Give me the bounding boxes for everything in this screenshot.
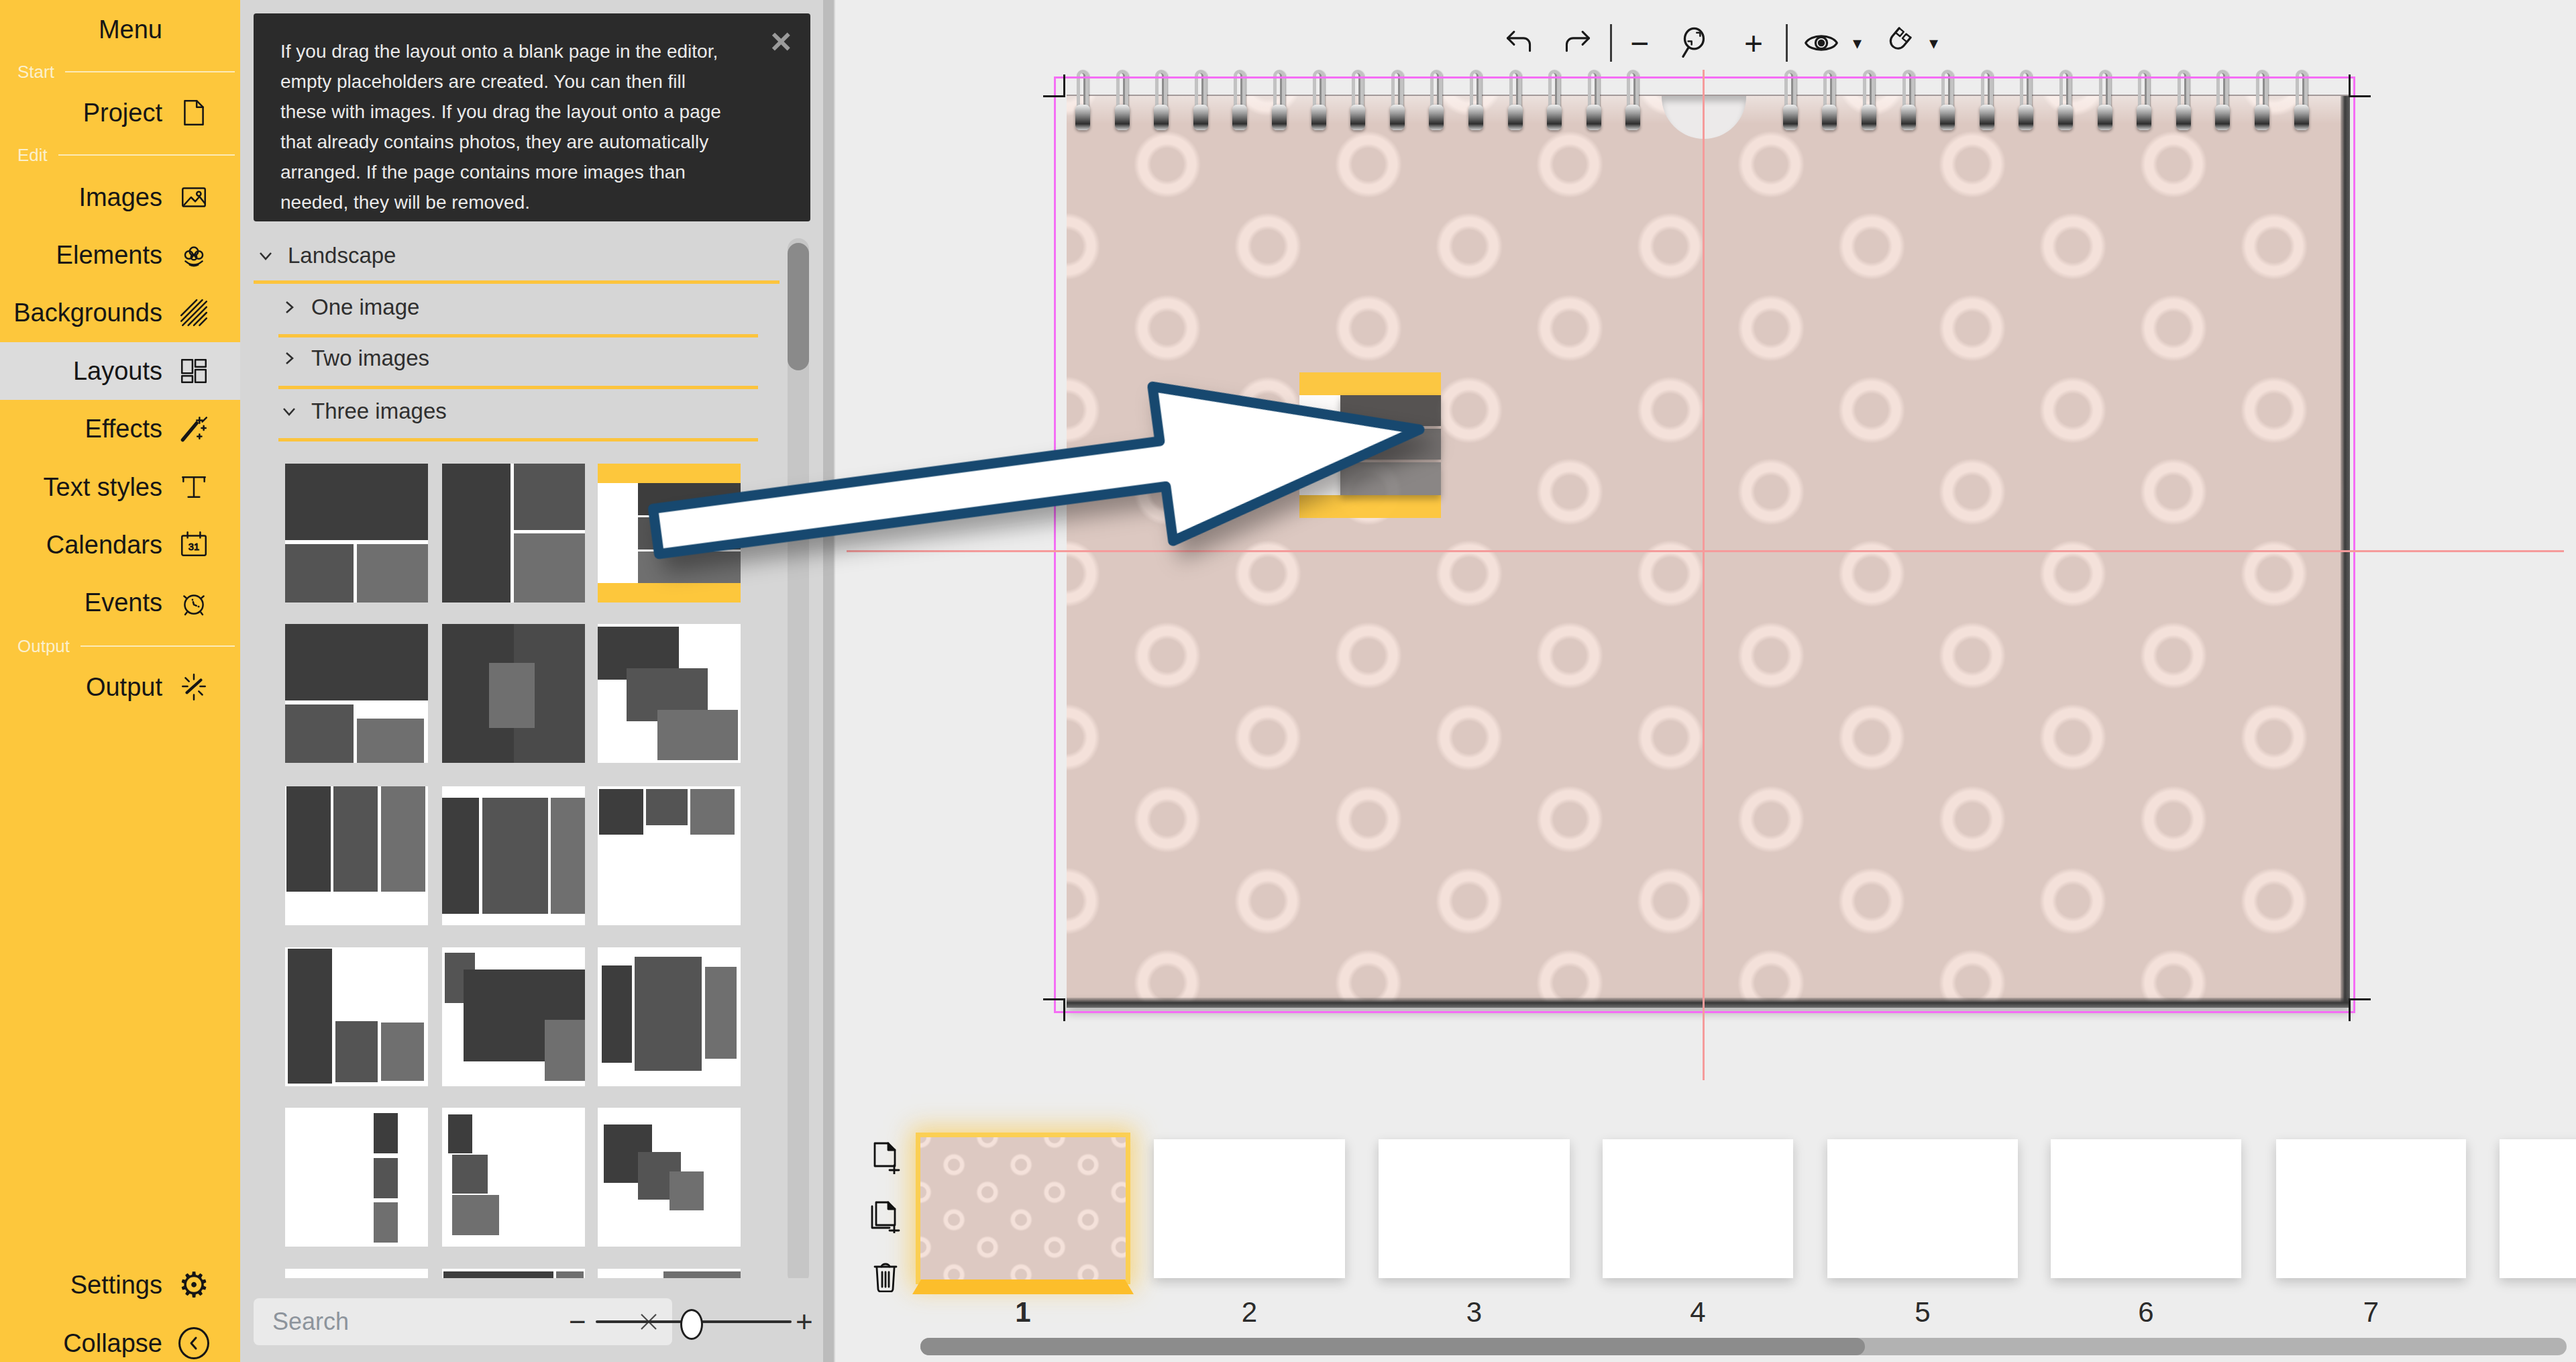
panel-scrollbar-track[interactable]: [788, 238, 809, 1285]
layout-thumbnail[interactable]: [598, 947, 741, 1086]
alarm-clock-icon: [178, 587, 209, 618]
layout-thumbnail[interactable]: [442, 464, 585, 603]
layout-thumbnail[interactable]: [285, 624, 428, 763]
document-icon: [178, 97, 209, 128]
page-number: 7: [2276, 1296, 2466, 1331]
flower-icon: [178, 240, 209, 270]
visibility-eye-icon[interactable]: [1803, 24, 1839, 62]
toolbar-separator: [1786, 24, 1788, 62]
magic-wand-icon: [178, 413, 209, 444]
undo-button[interactable]: [1501, 24, 1536, 62]
layout-thumbnail-selected[interactable]: [598, 464, 741, 603]
sidebar-item-images[interactable]: Images: [0, 168, 240, 226]
layout-thumbnail[interactable]: [442, 947, 585, 1086]
page-number: 5: [1827, 1296, 2018, 1331]
layout-thumbnail[interactable]: [598, 786, 741, 925]
sidebar-item-project[interactable]: Project: [0, 84, 240, 142]
calendar-icon: 31: [178, 529, 209, 560]
snap-magnet-icon[interactable]: [1878, 24, 1915, 62]
layout-thumbnail[interactable]: [442, 624, 585, 763]
filmstrip-page-7[interactable]: [2276, 1139, 2466, 1278]
thumbnail-size-slider-thumb[interactable]: [680, 1309, 703, 1340]
thumbnail-zoom-out[interactable]: −: [569, 1298, 586, 1345]
horizontal-center-guide: [847, 550, 2564, 552]
layout-thumbnail[interactable]: [285, 786, 428, 925]
page-number: 1: [920, 1296, 1126, 1331]
vertical-center-guide: [1703, 70, 1705, 1080]
subcategory-three-images[interactable]: Three images: [280, 399, 447, 424]
layout-thumbnail[interactable]: [442, 1108, 585, 1247]
chevron-right-icon: [280, 350, 298, 367]
layout-drag-tooltip: If you drag the layout onto a blank page…: [254, 13, 810, 221]
section-start: Start: [17, 62, 235, 82]
menu-label: Menu: [99, 15, 162, 44]
filmstrip-page-1[interactable]: [920, 1137, 1126, 1279]
filmstrip-page-8[interactable]: [2500, 1139, 2576, 1278]
svg-text:31: 31: [189, 541, 199, 552]
sidebar-item-effects[interactable]: Effects: [0, 400, 240, 458]
subcategory-two-images[interactable]: Two images: [280, 346, 429, 371]
serif-t-icon: [178, 472, 209, 503]
thumbnail-zoom-in[interactable]: +: [796, 1298, 813, 1345]
zoom-out-button[interactable]: −: [1630, 24, 1649, 62]
layouts-panel: Landscape One image Two images Three ima…: [240, 0, 835, 1362]
sidebar-item-calendars[interactable]: Calendars 31: [0, 516, 240, 574]
filmstrip-selection-tab: [912, 1279, 1134, 1294]
spark-icon: [178, 672, 209, 702]
subcategory-one-image[interactable]: One image: [280, 295, 419, 320]
sidebar-item-events[interactable]: Events: [0, 574, 240, 631]
chevron-down-icon: [257, 247, 274, 264]
sidebar-item-backgrounds[interactable]: Backgrounds: [0, 284, 240, 342]
section-edit: Edit: [17, 145, 235, 165]
layout-grid-icon: [178, 356, 209, 386]
filmstrip-page-6[interactable]: [2051, 1139, 2241, 1278]
filmstrip-scrollbar-thumb[interactable]: [920, 1338, 1865, 1355]
toolbar-separator: [1610, 24, 1612, 62]
visibility-dropdown-caret[interactable]: ▾: [1853, 24, 1862, 62]
sidebar-item-text-styles[interactable]: Text styles: [0, 458, 240, 516]
filmstrip-page-2[interactable]: [1154, 1139, 1345, 1278]
category-landscape[interactable]: Landscape: [257, 243, 396, 268]
section-output: Output: [17, 636, 235, 656]
hamburger-icon: [178, 14, 209, 45]
zoom-in-button[interactable]: +: [1744, 24, 1763, 62]
delete-page-icon[interactable]: [869, 1259, 902, 1292]
layout-thumbnail[interactable]: [442, 786, 585, 925]
page-guide-border: [1054, 76, 2355, 1013]
snap-dropdown-caret[interactable]: ▾: [1929, 24, 1938, 62]
sidebar-item-collapse[interactable]: Collapse: [0, 1314, 240, 1362]
chevron-down-icon: [280, 403, 298, 420]
sidebar-item-settings[interactable]: Settings ⚙: [0, 1256, 240, 1314]
hatch-icon: [178, 297, 209, 328]
layout-thumbnail[interactable]: [598, 1108, 741, 1247]
app-window: Menu Start Project Edit Images Elements: [0, 0, 2576, 1362]
chevron-right-icon: [280, 299, 298, 316]
page-number: 4: [1603, 1296, 1793, 1331]
sidebar-item-layouts[interactable]: Layouts: [0, 342, 240, 400]
filmstrip-page-3[interactable]: [1379, 1139, 1570, 1278]
image-icon: [178, 182, 209, 213]
panel-footer: − +: [240, 1278, 835, 1362]
menu-button[interactable]: Menu: [0, 1, 240, 58]
sidebar: Menu Start Project Edit Images Elements: [0, 0, 240, 1362]
layout-thumbnail[interactable]: [285, 947, 428, 1086]
panel-canvas-divider: [823, 0, 834, 1362]
layout-thumbnail[interactable]: [285, 464, 428, 603]
duplicate-page-icon[interactable]: [869, 1200, 902, 1233]
layout-thumbnail[interactable]: [598, 624, 741, 763]
page-number: 6: [2051, 1296, 2241, 1331]
redo-button[interactable]: [1560, 24, 1595, 62]
layout-thumbnail[interactable]: [285, 1108, 428, 1247]
sidebar-item-elements[interactable]: Elements: [0, 226, 240, 284]
sidebar-item-output[interactable]: Output: [0, 658, 240, 716]
page-number: 3: [1379, 1296, 1570, 1331]
filmstrip-page-4[interactable]: [1603, 1139, 1793, 1278]
gear-icon: ⚙: [178, 1269, 209, 1300]
zoom-fit-icon[interactable]: [1677, 24, 1715, 62]
collapse-icon: [178, 1328, 209, 1359]
add-page-icon[interactable]: [869, 1141, 902, 1174]
page-number: 2: [1154, 1296, 1345, 1331]
panel-scrollbar-thumb[interactable]: [788, 243, 809, 370]
close-icon[interactable]: ×: [770, 23, 792, 59]
filmstrip-page-5[interactable]: [1827, 1139, 2018, 1278]
category-underline: [254, 280, 780, 284]
